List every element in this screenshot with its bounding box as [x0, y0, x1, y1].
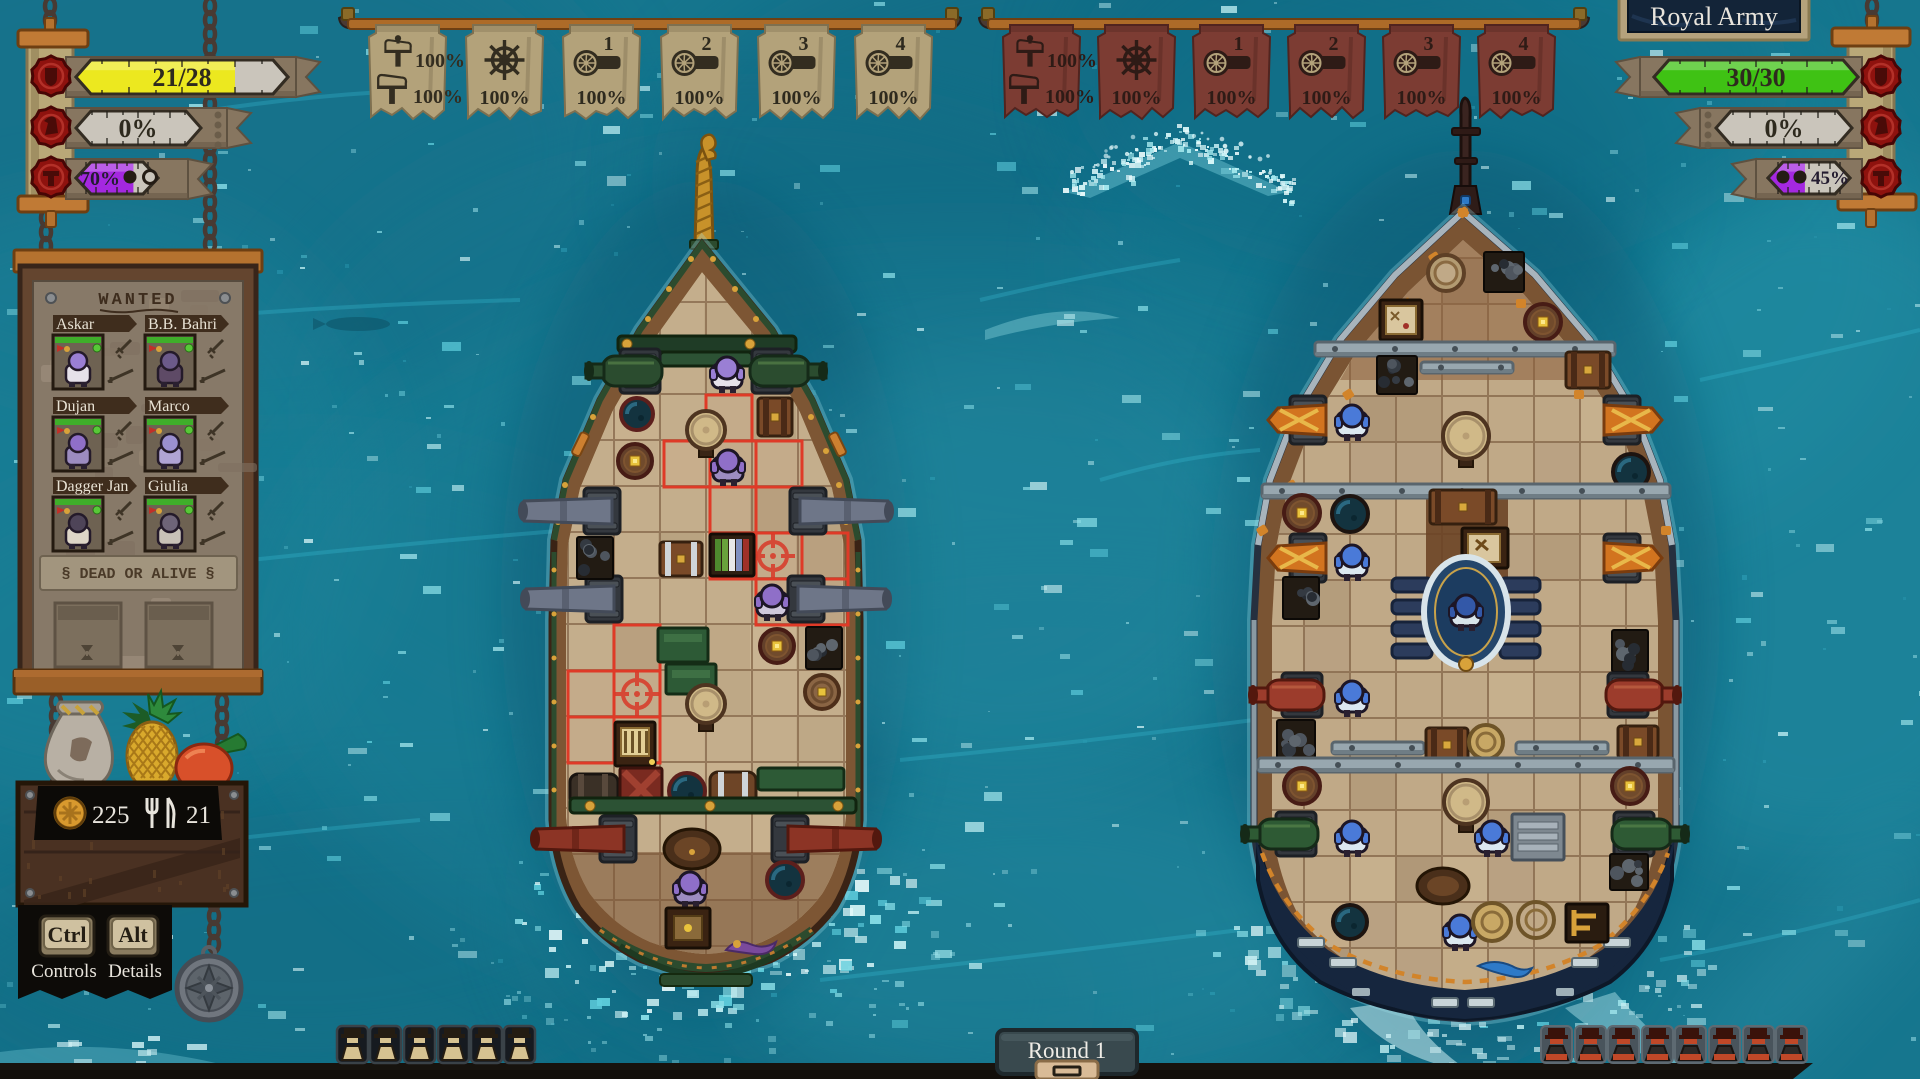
- svg-text:100%: 100%: [1112, 87, 1162, 109]
- svg-text:§ DEAD OR ALIVE §: § DEAD OR ALIVE §: [61, 566, 214, 583]
- svg-text:Details: Details: [108, 961, 162, 982]
- svg-text:4: 4: [1519, 33, 1529, 55]
- svg-text:WANTED: WANTED: [98, 291, 177, 310]
- svg-text:225: 225: [92, 802, 130, 829]
- svg-text:Alt: Alt: [118, 922, 148, 947]
- svg-text:100%: 100%: [480, 87, 530, 109]
- svg-text:1: 1: [604, 33, 614, 55]
- svg-text:100%: 100%: [1302, 87, 1352, 109]
- svg-text:0%: 0%: [119, 114, 158, 143]
- svg-text:2: 2: [1329, 33, 1339, 55]
- svg-text:Askar: Askar: [56, 316, 95, 333]
- svg-text:100%: 100%: [1492, 87, 1542, 109]
- svg-text:70%: 70%: [80, 168, 120, 190]
- svg-text:100%: 100%: [1047, 50, 1097, 72]
- svg-text:45%: 45%: [1811, 168, 1849, 189]
- svg-text:100%: 100%: [675, 87, 725, 109]
- svg-text:100%: 100%: [415, 50, 465, 72]
- svg-text:B.B. Bahri: B.B. Bahri: [148, 316, 217, 333]
- svg-text:2: 2: [702, 33, 712, 55]
- svg-text:100%: 100%: [772, 87, 822, 109]
- svg-text:Giulia: Giulia: [148, 478, 188, 495]
- svg-text:100%: 100%: [413, 86, 463, 108]
- svg-text:Dujan: Dujan: [56, 398, 95, 415]
- svg-text:Dagger Jan: Dagger Jan: [56, 478, 128, 495]
- svg-text:100%: 100%: [1207, 87, 1257, 109]
- svg-text:Marco: Marco: [148, 398, 190, 415]
- svg-text:3: 3: [1424, 33, 1434, 55]
- svg-text:21/28: 21/28: [152, 63, 211, 92]
- svg-text:Round 1: Round 1: [1028, 1038, 1107, 1063]
- svg-text:3: 3: [799, 33, 809, 55]
- svg-text:Controls: Controls: [31, 961, 96, 982]
- svg-text:100%: 100%: [1397, 87, 1447, 109]
- svg-text:21: 21: [186, 802, 211, 829]
- svg-text:100%: 100%: [577, 87, 627, 109]
- svg-text:30/30: 30/30: [1726, 63, 1785, 92]
- svg-text:Ctrl: Ctrl: [47, 922, 86, 947]
- svg-text:Royal Army: Royal Army: [1650, 2, 1778, 31]
- svg-text:100%: 100%: [1045, 86, 1095, 108]
- svg-text:0%: 0%: [1765, 114, 1804, 143]
- svg-text:4: 4: [896, 33, 906, 55]
- svg-text:100%: 100%: [869, 87, 919, 109]
- svg-text:1: 1: [1234, 33, 1244, 55]
